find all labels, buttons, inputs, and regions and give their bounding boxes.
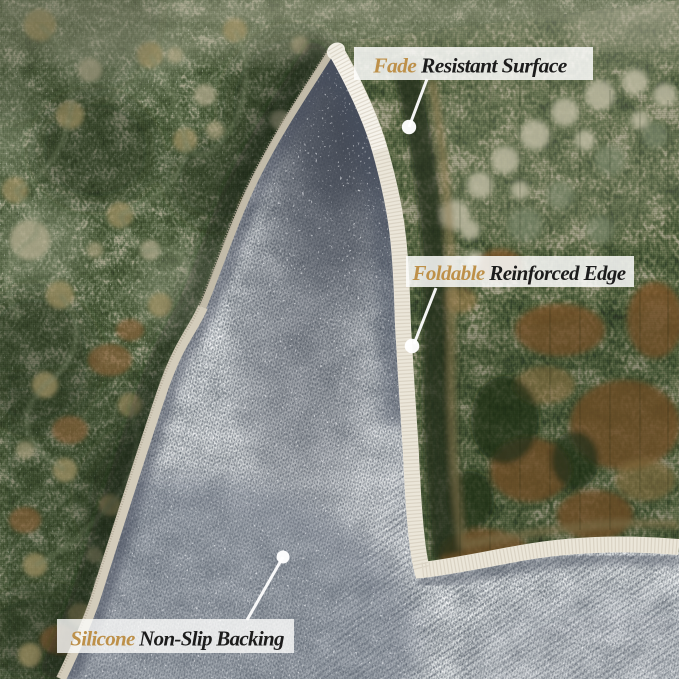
svg-text:Foldable Reinforced Edge: Foldable Reinforced Edge bbox=[411, 261, 625, 285]
svg-text:Silicone Non-Slip Backing: Silicone Non-Slip Backing bbox=[70, 627, 284, 651]
svg-text:Fade Resistant Surface: Fade Resistant Surface bbox=[372, 54, 568, 78]
